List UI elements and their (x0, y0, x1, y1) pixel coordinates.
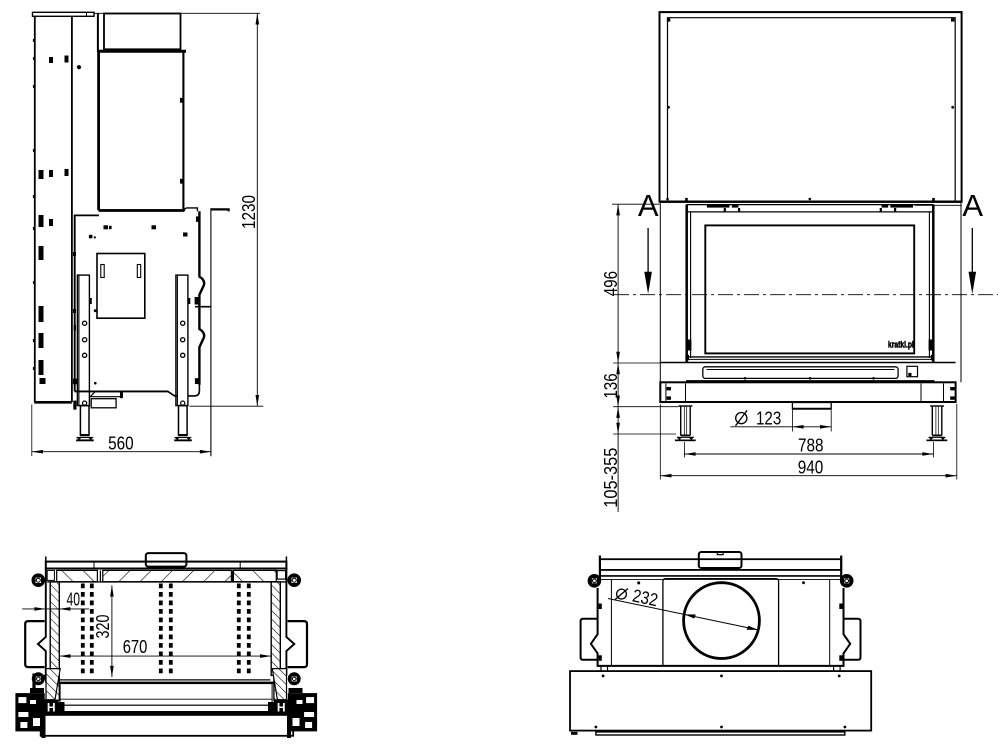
svg-text:105-355: 105-355 (601, 448, 621, 508)
svg-text:kratki.pl: kratki.pl (888, 340, 914, 351)
svg-text:40: 40 (67, 589, 81, 609)
svg-text:A: A (638, 188, 659, 223)
svg-text:670: 670 (123, 637, 148, 657)
svg-text:320: 320 (93, 615, 113, 639)
svg-text:H: H (277, 700, 286, 714)
svg-text:136: 136 (601, 373, 621, 398)
svg-text:123: 123 (756, 408, 781, 428)
svg-text:1230: 1230 (239, 195, 259, 229)
svg-text:H: H (47, 700, 56, 714)
svg-text:496: 496 (601, 271, 621, 296)
svg-text:560: 560 (108, 433, 134, 453)
svg-text:A: A (962, 188, 983, 223)
svg-text:940: 940 (798, 457, 824, 477)
svg-text:788: 788 (798, 436, 824, 456)
